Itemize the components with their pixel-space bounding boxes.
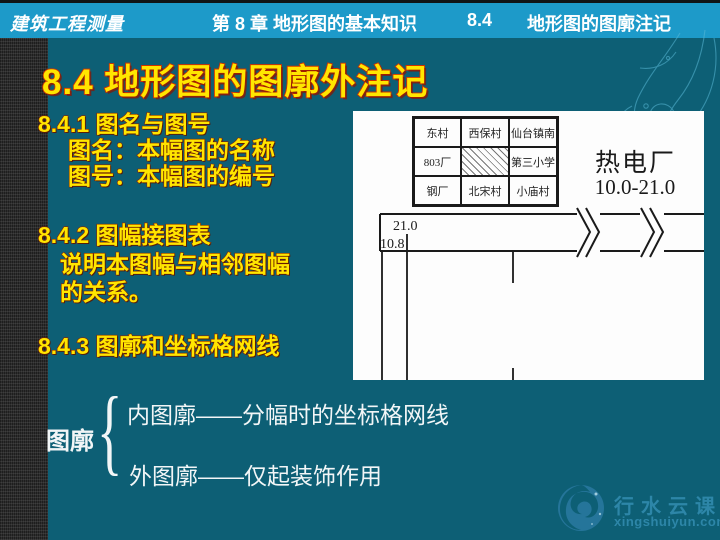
slide-title: 8.4 地形图的图廓外注记 (42, 54, 428, 105)
line-842-2: 的关系。 (60, 273, 152, 307)
chapter-title: 第 8 章 地形图的基本知识 (212, 10, 417, 36)
section-number: 8.4 (467, 10, 492, 31)
bracket-item-outer: 外图廓——仅起装饰作用 (129, 457, 382, 491)
brace-glyph: { (97, 381, 122, 481)
bracket-label: 图廓 (46, 421, 94, 456)
line-841-2: 图号：本幅图的编号 (68, 157, 275, 191)
slide: 建筑工程测量 第 8 章 地形图的基本知识 8.4 地形图的图廓注记 8.4 地… (0, 0, 720, 540)
break-mark (650, 208, 663, 257)
break-mark (641, 208, 654, 257)
break-mark (586, 208, 599, 257)
wave-logo-icon (556, 480, 608, 534)
watermark-site: xingshuiyun.com (614, 514, 720, 529)
bracket-item-inner: 内图廓——分幅时的坐标格网线 (127, 396, 449, 430)
west-coordinate-label: 10.8 (380, 237, 405, 252)
heading-843: 8.4.3 图廓和坐标格网线 (38, 327, 280, 361)
course-title: 建筑工程测量 (10, 10, 124, 36)
map-frame-drawing: 21.0 10.8 (353, 111, 704, 380)
break-mark (577, 208, 590, 257)
north-coordinate-label: 21.0 (393, 219, 418, 234)
map-margin-diagram: 东村 西保村 仙台镇南 803厂 第三小学 钢厂 北宋村 小庙村 热电厂 10.… (353, 111, 704, 380)
